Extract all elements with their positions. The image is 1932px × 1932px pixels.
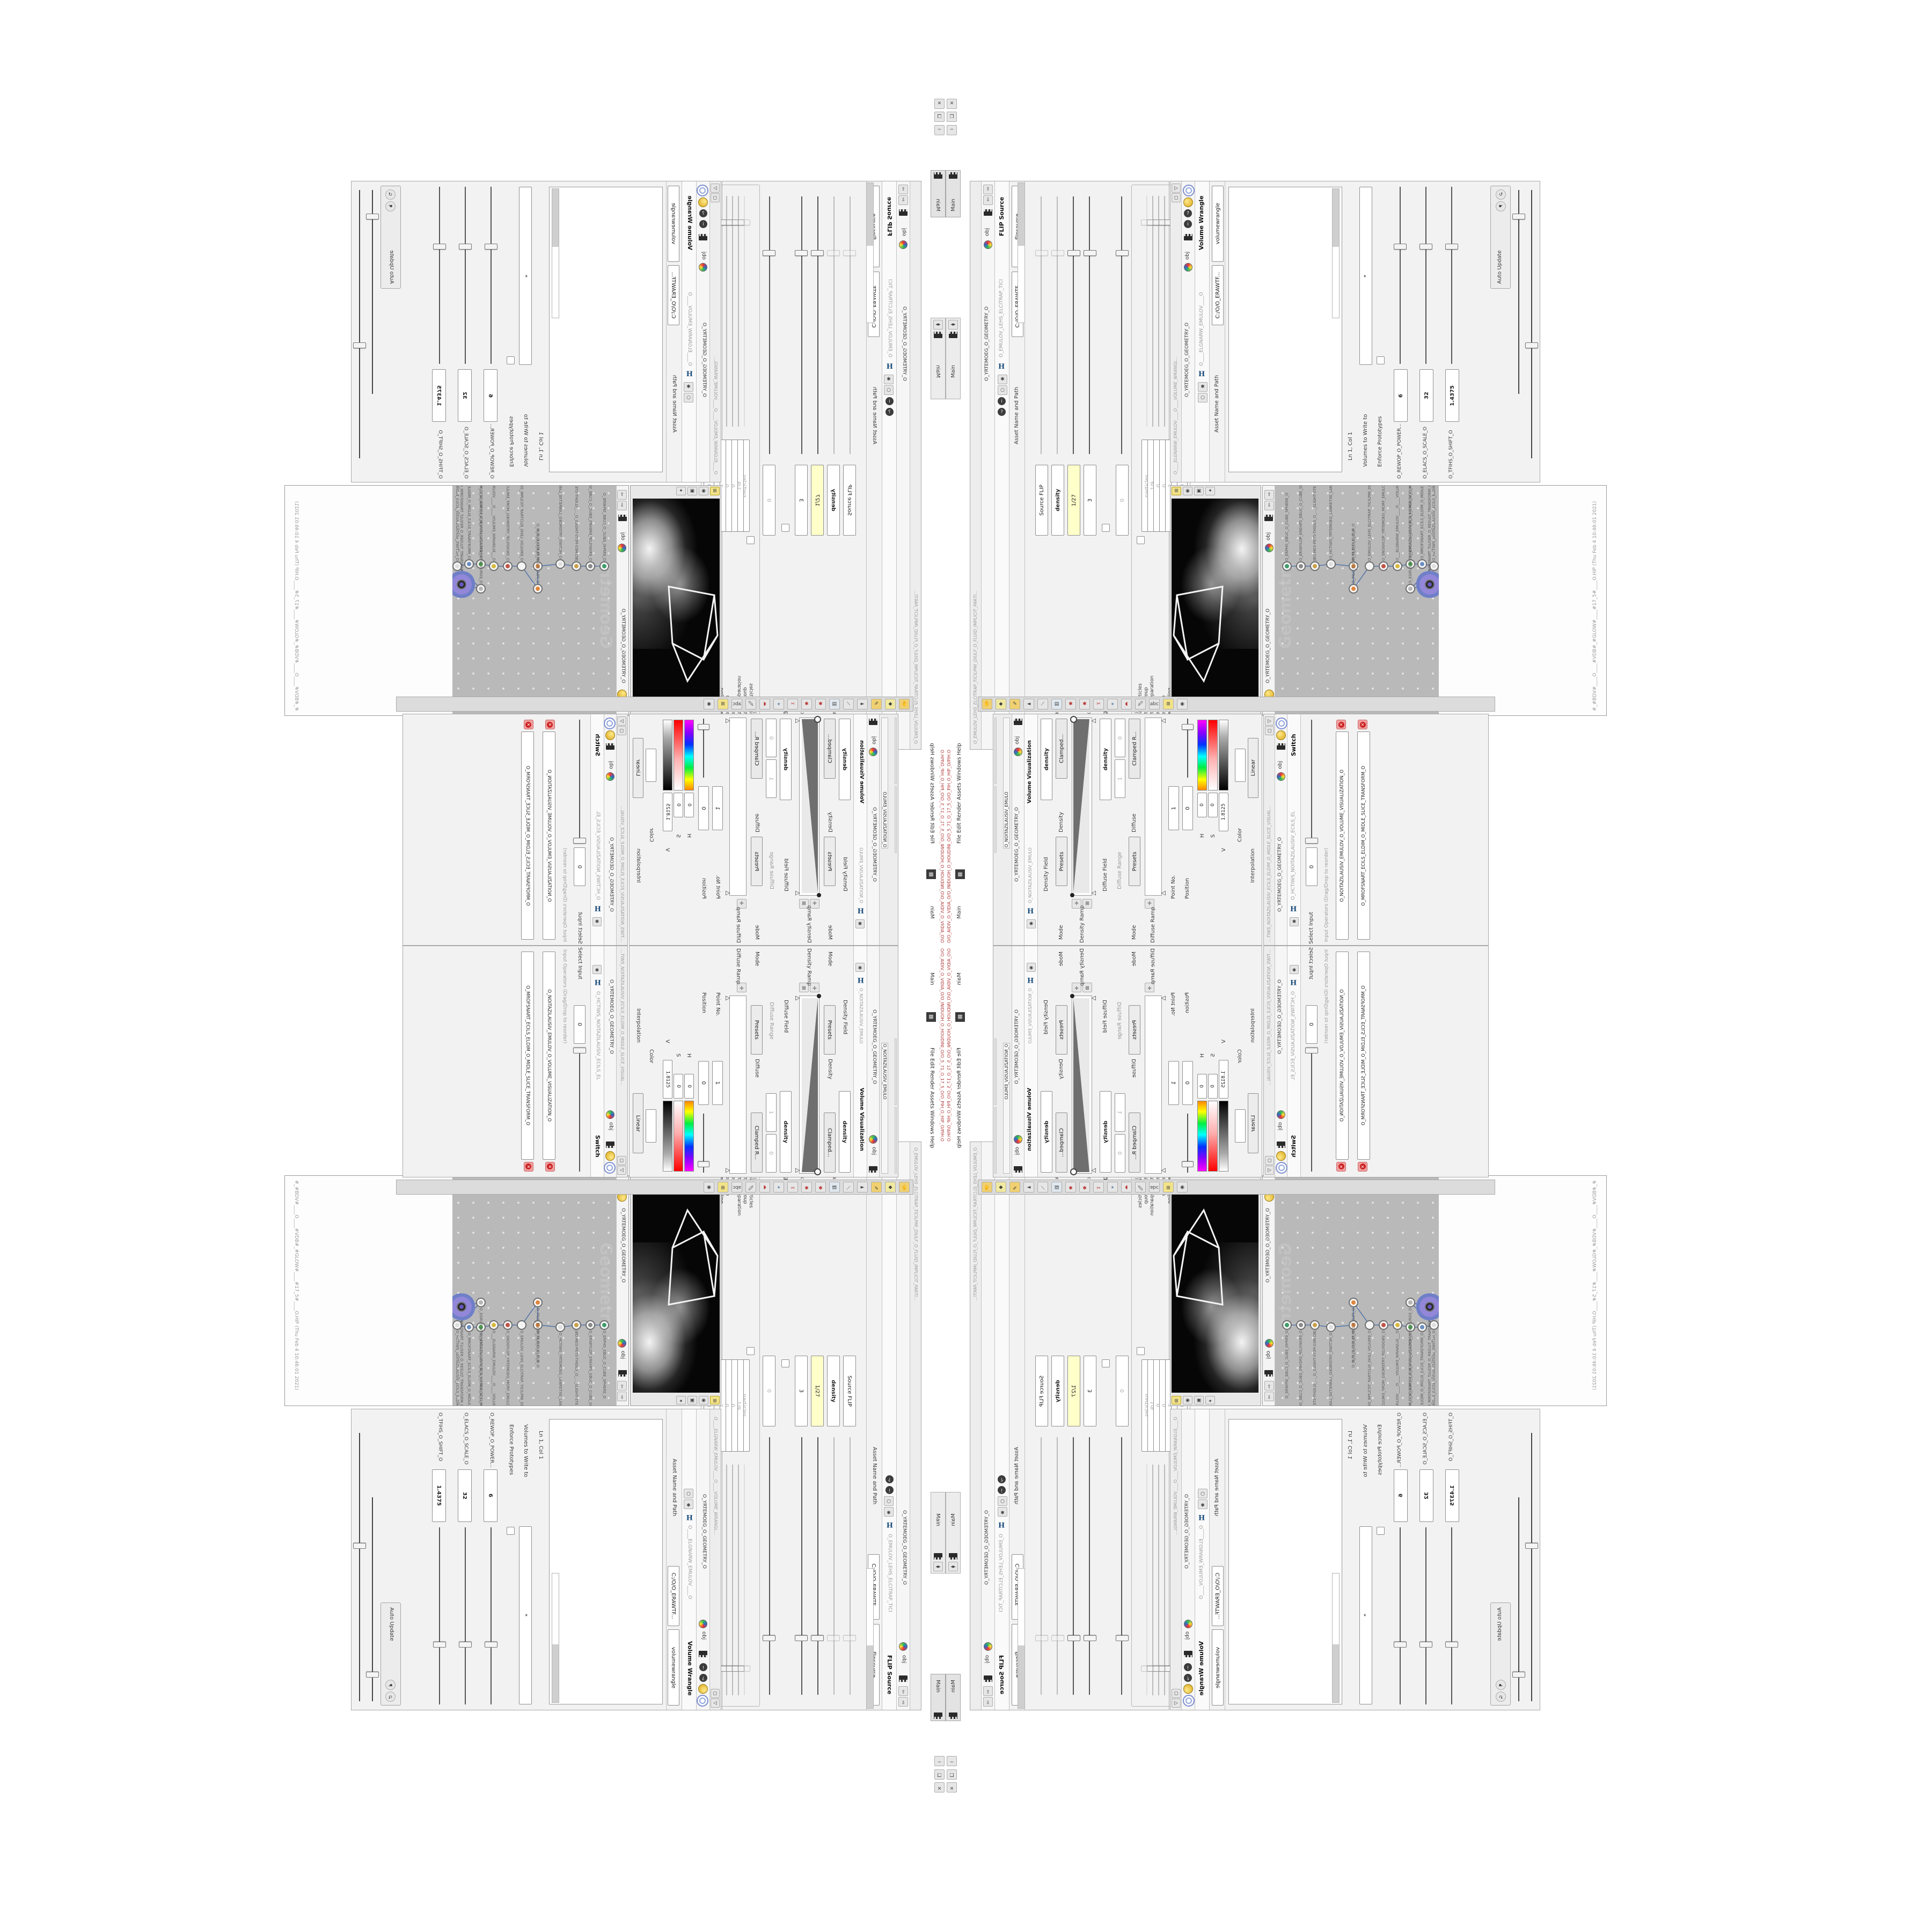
pane-tab-title[interactable]: FLIP Source [998,1655,1005,1704]
interpolation-row[interactable]: Linear Interpolation [1247,716,1260,942]
ramp-marker[interactable]: ◁ [1092,717,1096,724]
asset-path-field[interactable]: C:/O/O_ERAWTF... [668,265,679,325]
parameter-row[interactable]: Create Particles [1135,1167,1140,1704]
diffuse-ramp-widget[interactable]: ◁ ◁ ✛ Diffuse Ramp [725,949,749,1175]
breadcrumb-root[interactable]: obj [1265,525,1271,540]
saturation-ramp[interactable] [1208,1101,1218,1172]
help-icon[interactable]: ? [885,408,894,416]
parameter-row[interactable]: particles Particle Group [1141,187,1146,724]
enforce-checkbox[interactable] [507,356,515,364]
slider-row[interactable]: 1.4375 O_TFIHS_O_SHIFT_O [1441,1413,1462,1707]
diffuse-mode-row[interactable]: Clamped R... Diffuse Presets Mode [750,716,764,942]
info-icon[interactable]: i [699,1663,707,1671]
pane-play-icon[interactable]: ▷ [1172,1699,1181,1708]
image-icon[interactable]: ▤ [1051,699,1062,709]
eye-icon[interactable]: ◉ [699,487,708,495]
parameter-row[interactable]: 1/27 Voxel Size [1066,186,1081,745]
display-slider[interactable] [372,1497,373,1701]
ramp-handle[interactable] [814,1168,821,1175]
parameter-row[interactable]: Source FLIP Initialize [1034,186,1049,745]
density-field-row[interactable]: density Density Field [1040,949,1053,1175]
scissors-icon[interactable]: ✂ [787,699,798,709]
position-row[interactable]: 0 Position [697,949,710,1175]
viewport-canvas[interactable] [1172,1190,1258,1393]
diffuse-range-row[interactable]: 0 1 Diffuse Range [765,949,778,1175]
breadcrumb-root[interactable]: obj [901,220,907,236]
select-arrow-icon[interactable]: ◄ [1023,699,1034,709]
parameter-row[interactable]: 1/9 Particle Separation [739,187,744,724]
info-icon[interactable]: i [998,1486,1006,1494]
density-field-row[interactable]: density Density Field [838,716,852,942]
pane-scrollbar[interactable] [866,182,874,323]
parameter-row[interactable]: 0 Jitter Scale [727,187,733,724]
pane-tab-path[interactable]: O____ELGNARW_EMULOV____O____VOLUME_WRANG… [713,206,718,474]
pane-play-icon[interactable]: ▷ [1265,716,1274,726]
pane-up-arrow-icon[interactable]: ⇧ [898,185,908,194]
pane-tab-title[interactable]: Switch [594,1135,601,1173]
ramp-handle[interactable] [1070,716,1077,723]
breadcrumb-root[interactable]: obj [1184,1631,1190,1646]
parameter-row[interactable]: Source FLIP Initialize [1034,1146,1049,1706]
ruler-icon[interactable]: ⟋ [1037,699,1048,709]
main-floating-window[interactable]: Main [931,1674,946,1721]
scissors-icon[interactable]: ✂ [787,1182,798,1192]
asset-path-field[interactable]: C:/O/O_ERAWTF... [1212,1566,1224,1626]
parameter-row[interactable]: 0 Jitter Scale [1159,1167,1164,1704]
hue-ramp[interactable] [684,720,694,791]
parameter-row[interactable]: Source FLIP Initialize [843,186,858,745]
pane-tab-inactive[interactable] [895,1107,897,1174]
search-icon[interactable]: ○ [998,1496,1007,1506]
slider-row[interactable]: 6 O_REWOP_O_POWER... [480,1413,502,1707]
gear-icon[interactable]: ✱ [684,1499,693,1509]
density-ramp-widget[interactable]: ◁ ◁ ✛ ⊞ Density Ramp [795,949,822,1175]
maximize-icon[interactable]: ❐ [947,112,957,122]
vex-code-editor[interactable] [549,187,663,472]
breadcrumb-root[interactable]: obj [608,754,614,769]
info-icon[interactable]: i [1184,220,1192,228]
axis-icon[interactable]: ⚹ [1107,1182,1118,1192]
gear-red-icon[interactable]: ✱ [801,1182,812,1192]
gear-icon[interactable]: ✱ [1027,963,1036,972]
parameter-row[interactable]: 0 Jitter Seed [733,187,738,724]
diffuse-field-row[interactable]: density Diffuse Field [779,716,793,942]
pane-up-arrow-icon[interactable]: ⇧ [983,185,993,194]
diffuse-range-row[interactable]: 0 1 Diffuse Range [1114,949,1126,1175]
pane-arrows-icon[interactable]: ◂▸ [933,1562,943,1571]
density-mode-row[interactable]: Clamped... Density Presets Mode [823,949,837,1175]
saturation-ramp[interactable] [1208,720,1218,791]
minimize-icon[interactable]: ─ [934,125,945,135]
input-operator-item[interactable]: ✕ O_MROFSNART_ECILS_ELDIM_O_MIDLE_SLICE_… [1355,949,1371,1175]
eye-icon[interactable]: ◉ [704,1182,714,1192]
pin-icon[interactable] [1183,1684,1193,1694]
density-field-row[interactable]: density Density Field [838,949,852,1175]
pane-layout-icon[interactable]: ◻ [617,1156,626,1165]
pane-arrows-icon[interactable]: ◂▸ [933,320,943,330]
network-grid[interactable]: Geometry O_ERPHS_EBUC_O_CUBE_SPHERE_O O_… [452,486,616,714]
gear-icon[interactable]: ✱ [592,917,602,926]
diffuse-mode-row[interactable]: Clamped R... Diffuse Presets Mode [1128,949,1141,1175]
search-icon[interactable]: ○ [684,1489,693,1498]
value-ramp[interactable] [663,1101,672,1172]
slider-row[interactable]: 1.4375 O_TFIHS_O_SHIFT_O [1441,185,1462,479]
scissors-icon[interactable]: ✂ [1093,699,1104,709]
pane-down-arrow-icon[interactable]: ⇩ [983,1686,993,1696]
hsv-color-editor[interactable]: 0 0 1.8125 H S V [1196,949,1232,1175]
snapshot-icon[interactable]: ✦ [676,487,686,495]
ramp-handle[interactable] [1070,893,1074,897]
eye-icon[interactable]: ◉ [1177,699,1188,709]
gear-icon[interactable]: ✱ [998,1507,1007,1517]
interpolation-row[interactable]: Linear Interpolation [1247,949,1260,1175]
breadcrumb-root[interactable]: obj [1277,1122,1283,1137]
parameter-row[interactable]: density Volume Name [826,1146,841,1706]
pane-layout-icon[interactable]: ◻ [1265,726,1274,735]
abc-icon[interactable]: abc [731,699,742,709]
close-icon[interactable]: ✕ [934,99,945,109]
pane-up-arrow-icon[interactable]: ⇧ [1264,1392,1274,1401]
ramp-handle[interactable] [817,893,821,897]
parameter-row[interactable]: 3 Shell Thickness [794,1146,809,1706]
parameter-row[interactable]: Create Particles [751,1167,756,1704]
pane-play-icon[interactable]: ▷ [711,1699,720,1708]
menu-bar[interactable]: File Edit Render Assets Windows Help [929,1048,935,1209]
desktop-selector[interactable]: Main [956,972,962,998]
ramp-handle[interactable] [1070,1168,1077,1175]
refresh-icon[interactable]: ↺ [385,189,396,200]
interpolation-row[interactable]: Linear Interpolation [632,949,645,1175]
pane-tab-title[interactable]: Volume Visualization [859,718,865,803]
gear-icon[interactable]: ✱ [684,382,693,392]
asset-name-field[interactable]: volumewrangle [1212,186,1224,262]
pane-play-icon[interactable]: ▷ [711,184,720,193]
viewport-canvas[interactable] [633,1190,720,1393]
parameter-row[interactable]: 2 Oversampling [721,1167,727,1704]
pane-down-arrow-icon[interactable]: ⇩ [983,195,993,205]
magnet-icon[interactable]: ◖ [759,1182,770,1192]
ramp-marker[interactable]: ◁ [795,995,800,1002]
parameter-row[interactable]: Output Fog [1098,1146,1113,1706]
input-operator-item[interactable]: ✕ O_NOITAZILAUSIV_EMULOV_O_VOLUME_VISUAL… [541,949,558,1175]
parameter-row[interactable]: 0 Jitter Seed [733,1167,738,1704]
desktop-selector[interactable]: Main [929,893,935,919]
auto-update-bar[interactable]: ↺ ☛ Auto Update [1490,1602,1511,1706]
pane-layout-icon[interactable]: ◻ [1265,1156,1274,1165]
gear-red-icon[interactable]: ✱ [1079,1182,1090,1192]
pane-tab-path[interactable]: O____ELGNARW_EMULOV____O____VOLUME_WRANG… [713,1417,718,1685]
desktop-selector[interactable]: Main [956,893,962,919]
desktop-selector[interactable]: Main [929,972,935,998]
pin-icon[interactable] [1276,1151,1286,1161]
value-ramp[interactable] [663,720,672,791]
shelf-tool-icon[interactable]: ✎ [871,699,882,709]
parameter-row[interactable]: Output Fog [1098,186,1113,745]
brush-icon[interactable]: 🖉 [1135,1182,1146,1192]
search-icon[interactable]: ○ [684,393,693,402]
volumes-field[interactable]: * [1359,1526,1372,1704]
display-slider[interactable] [1518,1497,1519,1701]
pane-tab-path[interactable]: O_EMULOV_LEHS_ELCITRAP_TICILPMI_DIULF_O_… [973,186,978,744]
pane-tab-path[interactable]: ...TIWS_NOITAZILAUSIV_ECILS_ELDIM_O_MIDL… [1267,949,1271,1153]
code-scrollbar[interactable] [552,1573,559,1703]
color-row[interactable]: Color [645,716,657,942]
breadcrumb-root[interactable]: obj [608,1122,614,1137]
volumes-field[interactable]: * [1359,187,1372,365]
parameter-row[interactable]: 3 Shell Thickness [794,186,809,745]
viewport-canvas[interactable] [633,499,720,701]
ramp-handle[interactable] [814,716,821,723]
vex-code-editor[interactable] [1228,1419,1342,1704]
display-slider-2-handle[interactable] [353,1543,366,1549]
pane-down-arrow-icon[interactable]: ⇩ [1264,1381,1274,1391]
magnet-icon[interactable]: ◖ [1121,1182,1132,1192]
breadcrumb-path[interactable]: O_YRTEMOEG_O_GEOMETRY_O [872,758,877,882]
gear-icon[interactable]: ✱ [884,375,894,384]
layout-grid-icon[interactable]: ⊞ [1172,1396,1181,1404]
pane-tab-inactive[interactable] [994,718,997,784]
asset-name-field[interactable]: volumewrangle [668,186,679,262]
axis-icon[interactable]: ⚹ [1107,699,1118,709]
slider-row[interactable]: 6 O_REWOP_O_POWER... [480,185,502,479]
pin-icon[interactable] [698,1684,708,1694]
hue-ramp[interactable] [1197,720,1207,791]
breadcrumb-path[interactable]: O_YRTEMOEG_O_GEOMETRY_O [701,1494,707,1618]
info-icon[interactable]: i [885,397,894,405]
breadcrumb-path[interactable]: O_YRTEMOEG_O_GEOMETRY_O [1014,1009,1020,1133]
quad-view-icon[interactable]: ⊞ [1163,699,1174,709]
input-operator-item[interactable]: ✕ O_NOITAZILAUSIV_EMULOV_O_VOLUME_VISUAL… [541,716,558,942]
position-row[interactable]: 0 Position [697,716,710,942]
menu-bar[interactable]: File Edit Render Assets Windows Help [929,683,935,844]
display-slider-2[interactable] [1531,190,1532,458]
scissors-icon[interactable]: ✂ [1093,1182,1104,1192]
display-slider-2-handle[interactable] [1525,342,1538,348]
pane-tab-path[interactable]: O____ELGNARW_EMULOV____O____VOLUME_WRANG… [1173,1417,1178,1685]
ramp-handle[interactable] [1070,994,1074,998]
ramp-marker[interactable]: ◁ [795,717,800,724]
enforce-checkbox[interactable] [1377,1527,1385,1535]
color-row[interactable]: Color [1234,949,1247,1175]
pin-icon[interactable] [1183,197,1193,207]
ramp-marker[interactable]: ◁ [795,1167,800,1174]
parameter-row[interactable]: 2 Oversampling [721,187,727,724]
breadcrumb-path[interactable]: O_YRTEMOEG_O_GEOMETRY_O [609,979,614,1108]
select-arrow-icon[interactable]: ◄ [1023,1182,1034,1192]
breadcrumb-root[interactable]: obj [701,1631,707,1646]
enforce-checkbox[interactable] [507,1527,515,1535]
pane-tab-inactive[interactable] [994,1107,997,1174]
abc-icon[interactable]: abc [1149,699,1160,709]
diffuse-range-row[interactable]: 0 1 Diffuse Range [765,716,778,942]
code-scrollbar[interactable] [552,188,559,318]
layout-grid-icon[interactable]: ⊞ [710,1396,720,1404]
pane-tab-path[interactable]: ...TIWS_NOITAZILAUSIV_ECILS_ELDIM_O_MIDL… [1267,738,1271,942]
display-slider-2-handle[interactable] [1525,1543,1538,1549]
pane-tab-title[interactable]: Volume Visualization [859,1088,865,1174]
pane-tab-active[interactable]: O_NOITAZILAUSIV_EMULO [1003,718,1010,848]
eye-icon[interactable]: ◉ [1177,1182,1188,1192]
magnet-icon[interactable]: ◖ [1121,699,1132,709]
density-mode-row[interactable]: Clamped... Density Presets Mode [1055,949,1069,1175]
shelf-tool-icon[interactable]: ✋ [899,699,910,709]
gear-icon[interactable]: ✱ [1290,965,1299,974]
eye-icon[interactable]: ◉ [1183,1396,1192,1404]
shelf-tool-icon[interactable]: ✋ [982,1182,992,1192]
pane-down-arrow-icon[interactable]: ⇩ [898,195,908,205]
pane-tab-title[interactable]: FLIP Source [886,187,893,236]
asset-path-field[interactable]: C:/O/O_ERAWTF... [668,1566,679,1626]
select-input-row[interactable]: 0 Select Input [572,716,588,942]
slider-row[interactable]: 1.4375 O_TFIHS_O_SHIFT_O [429,1413,450,1707]
main-floating-window[interactable]: Main [931,170,946,217]
density-ramp-widget[interactable]: ◁ ◁ ✛ ⊞ Density Ramp [1070,949,1096,1175]
volumes-field[interactable]: * [519,1526,532,1704]
value-ramp[interactable] [1219,720,1228,791]
diffuse-field-row[interactable]: density Diffuse Field [779,949,793,1175]
display-slider-2-handle[interactable] [353,342,366,348]
parameter-row[interactable]: particles Particle Group [1141,1167,1146,1704]
info-icon[interactable]: i [885,1486,894,1494]
parameter-row[interactable]: 1/9 Particle Separation [1147,187,1152,724]
select-arrow-icon[interactable]: ◄ [857,1182,868,1192]
parameter-row[interactable]: 2 Oversampling [1165,187,1170,724]
density-ramp-widget[interactable]: ◁ ◁ ✛ ⊞ Density Ramp [795,716,822,942]
select-input-row[interactable]: 0 Select Input [1304,716,1320,942]
hsv-color-editor[interactable]: 0 0 1.8125 H S V [660,949,695,1175]
pane-play-icon[interactable]: ▷ [617,716,626,726]
vex-code-editor[interactable] [1228,187,1342,472]
parameter-row[interactable]: particles Particle Group [745,1167,750,1704]
parameter-row[interactable]: Output Fog [778,1146,793,1706]
parameter-row[interactable]: Source FLIP Initialize [843,1146,858,1706]
pane-tab-path[interactable]: O_EMULOV_LEHS_ELCITRAP_TICILPMI_DIULF_O_… [913,1147,918,1706]
pane-tab-title[interactable]: Volume Wrangle [686,186,693,250]
network-grid[interactable]: Geometry O_ERPHS_EBUC_O_CUBE_SPHERE_O O_… [1275,1177,1439,1406]
density-ramp-widget[interactable]: ◁ ◁ ✛ ⊞ Density Ramp [1070,716,1096,942]
gear-icon[interactable]: ✱ [1027,919,1036,928]
breadcrumb-path[interactable]: O_YRTEMOEG_O_GEOMETRY_O [1184,1494,1190,1618]
maximize-icon[interactable]: ❐ [934,1769,945,1780]
gear-red-icon[interactable]: ✱ [815,1182,826,1192]
color-row[interactable]: Color [1234,716,1247,942]
brush-icon[interactable]: 🖉 [1135,699,1146,709]
pane-tab-path[interactable]: O_EMULOV_LEHS_ELCITRAP_TICILPMI_DIULF_O_… [973,1147,978,1706]
point-no-row[interactable]: 1 Point No. [711,716,724,942]
network-grid[interactable]: Geometry O_ERPHS_EBUC_O_CUBE_SPHERE_O O_… [1275,486,1439,714]
axis-icon[interactable]: ⚹ [773,699,784,709]
camera-icon[interactable]: ▣ [1194,487,1204,495]
asset-name-field[interactable]: volumewrangle [1212,1629,1224,1706]
breadcrumb-root[interactable]: obj [1014,1147,1020,1162]
input-operator-item[interactable]: ✕ O_MROFSNART_ECILS_ELDIM_O_MIDLE_SLICE_… [1355,716,1371,942]
color-row[interactable]: Color [645,949,657,1175]
breadcrumb-path[interactable]: O_YRTEMOEG_O_GEOMETRY_O [902,252,907,381]
pane-tab-title[interactable]: Volume Wrangle [686,1641,693,1706]
vex-code-editor[interactable] [549,1419,663,1704]
parameter-row[interactable]: density Volume Name [1050,1146,1065,1706]
parameter-row[interactable]: 0 Fog Boost [762,186,777,745]
parameter-row[interactable]: 0 Fog Boost [1114,186,1129,745]
image-icon[interactable]: ▤ [829,699,840,709]
pane-tab-title[interactable]: Volume Wrangle [1198,186,1205,250]
hue-ramp[interactable] [1197,1101,1207,1172]
gear-red-icon[interactable]: ✱ [1065,699,1076,709]
ramp-handle[interactable] [817,994,821,998]
pane-tab-path[interactable]: ...TIWS_NOITAZILAUSIV_ECILS_ELDIM_O_MIDL… [620,949,625,1153]
eye-icon[interactable]: ◉ [1183,487,1192,495]
parameter-row[interactable]: Create Particles [1135,187,1140,724]
diffuse-ramp-widget[interactable]: ◁ ◁ ✛ Diffuse Ramp [1143,716,1166,942]
pane-tab-inactive[interactable] [895,786,897,853]
breadcrumb-path[interactable]: O_YRTEMOEG_O_GEOMETRY_O [984,252,990,381]
display-slider-2[interactable] [1531,1433,1532,1701]
shelf-tool-icon[interactable]: ✋ [899,1182,910,1192]
gear-red-icon[interactable]: ✱ [801,699,812,709]
gear-icon[interactable]: ✱ [592,965,602,974]
breadcrumb-root[interactable]: obj [871,729,877,744]
image-icon[interactable]: ▤ [1051,1182,1062,1192]
parameter-row[interactable]: 1/9 Particle Separation [1147,1167,1152,1704]
breadcrumb-root[interactable]: obj [871,1147,877,1162]
position-row[interactable]: 0 Position [1181,716,1194,942]
point-no-row[interactable]: 1 Point No. [1167,716,1180,942]
input-operator-item[interactable]: ✕ O_MROFSNART_ECILS_ELDIM_O_MIDLE_SLICE_… [520,949,536,1175]
pane-play-icon[interactable]: ▷ [617,1166,626,1175]
snapshot-icon[interactable]: ✦ [1205,487,1215,495]
pane-tab-title[interactable]: Volume Visualization [1027,1088,1033,1174]
display-slider[interactable] [1518,190,1519,394]
snapshot-icon[interactable]: ✦ [1205,1396,1215,1404]
breadcrumb-path[interactable]: O_YRTEMOEG_O_GEOMETRY_O [609,783,614,912]
point-no-row[interactable]: 1 Point No. [711,949,724,1175]
pane-tab-title[interactable]: Switch [1290,1135,1297,1173]
breadcrumb-root[interactable]: obj [901,1655,907,1671]
slider-row[interactable]: 1.4375 O_TFIHS_O_SHIFT_O [429,185,450,479]
shelf-tool-icon[interactable]: ◆ [996,699,1006,709]
pane-tab-title[interactable]: Switch [1290,719,1297,756]
info-icon[interactable]: i [1184,1663,1192,1671]
gear-icon[interactable]: ✱ [1290,917,1299,926]
pane-up-arrow-icon[interactable]: ⇧ [617,1392,627,1401]
hsv-color-editor[interactable]: 0 0 1.8125 H S V [1196,716,1232,942]
pane-tab-inactive[interactable] [994,1038,997,1105]
breadcrumb-root[interactable]: obj [984,1655,990,1671]
breadcrumb-root[interactable]: obj [1265,1351,1271,1366]
brush-icon[interactable]: 🖉 [745,699,756,709]
hsv-color-editor[interactable]: 0 0 1.8125 H S V [660,716,695,942]
help-icon[interactable]: ? [998,1475,1006,1483]
display-slider-handle[interactable] [366,214,379,219]
value-ramp[interactable] [1219,1101,1228,1172]
pane-tab-path[interactable]: O_EMULOV_LEHS_ELCITRAP_TICILPMI_DIULF_O_… [913,186,918,744]
search-icon[interactable]: ○ [1198,1489,1207,1498]
main-floating-window-2[interactable]: ◂▸ Main [931,318,946,399]
display-slider-2[interactable] [359,190,360,458]
close-icon[interactable]: ✕ [947,1783,957,1793]
pane-layout-icon[interactable]: ◻ [711,193,720,202]
saturation-ramp[interactable] [674,1101,683,1172]
magnet-icon[interactable]: ◖ [759,699,770,709]
parameter-row[interactable]: density Volume Name [1050,186,1065,745]
pane-tab-title[interactable]: FLIP Source [886,1655,893,1704]
search-icon[interactable]: ○ [884,385,894,395]
diffuse-mode-row[interactable]: Clamped R... Diffuse Presets Mode [1128,716,1141,942]
minimize-icon[interactable]: ─ [934,1757,945,1767]
pane-layout-icon[interactable]: ◻ [617,726,626,735]
auto-update-bar[interactable]: ↺ ☛ Auto Update [380,186,401,289]
pane-tab-path[interactable]: O____ELGNARW_EMULOV____O____VOLUME_WRANG… [1173,206,1178,474]
